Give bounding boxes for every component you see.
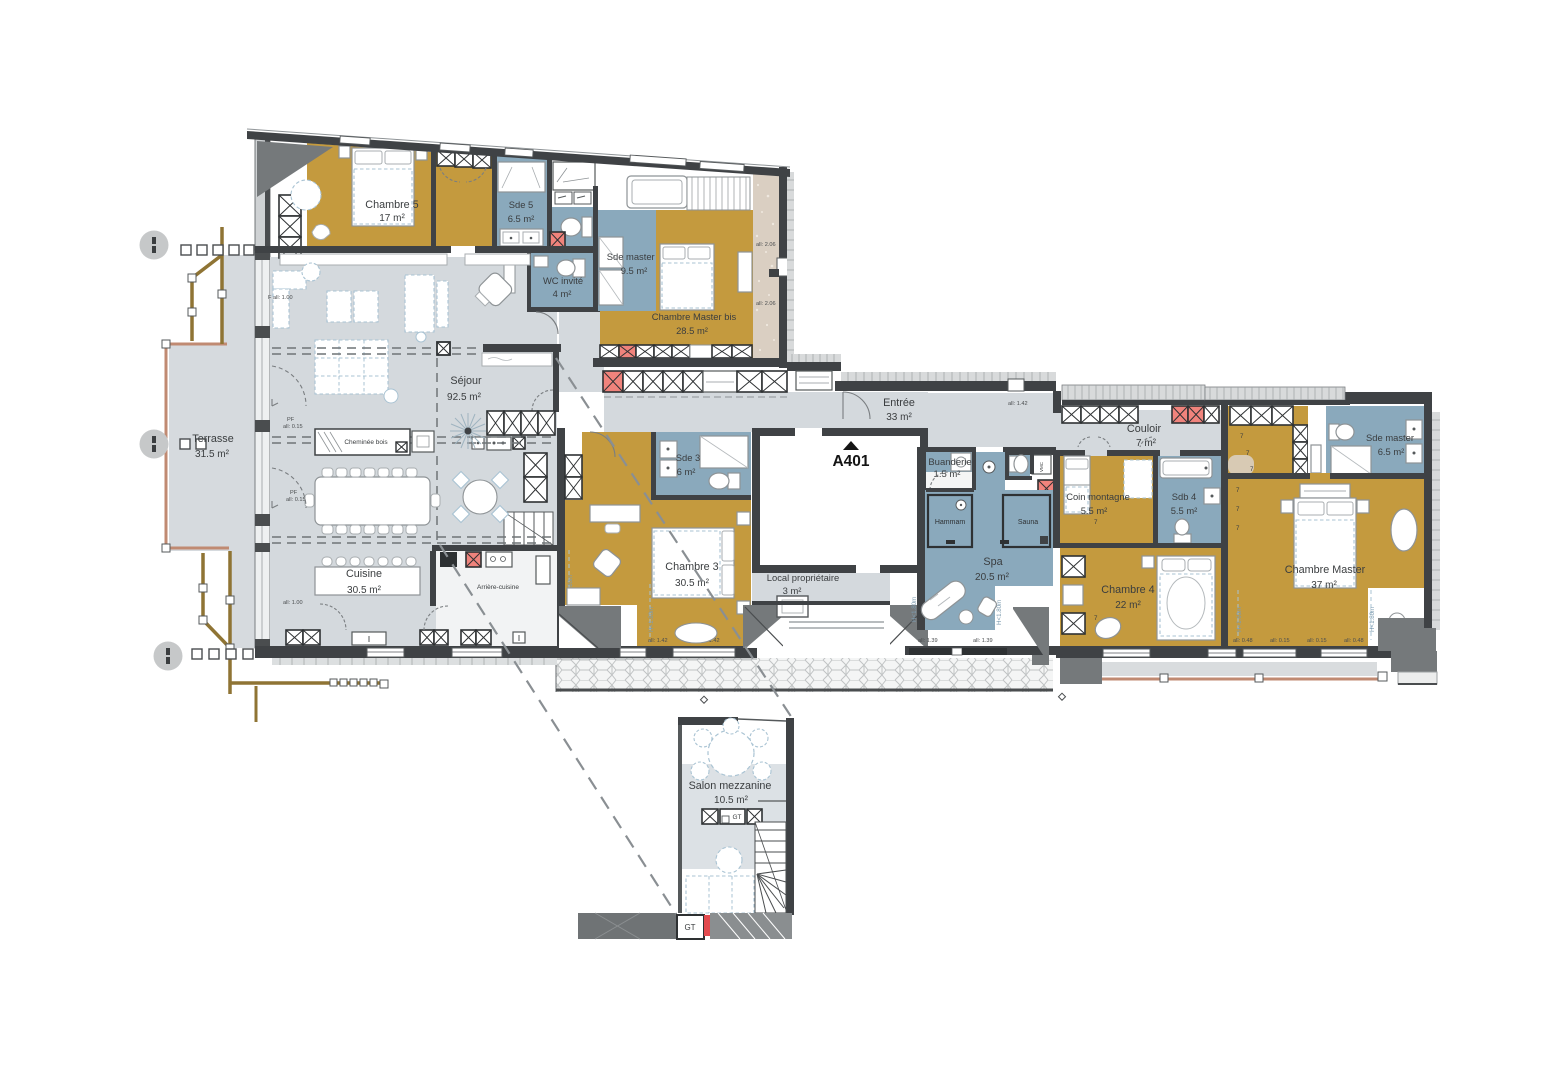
svg-text:31.5 m²: 31.5 m²	[195, 449, 230, 460]
svg-text:Buanderie: Buanderie	[928, 457, 971, 468]
svg-text:22 m²: 22 m²	[1115, 600, 1141, 611]
svg-text:Chambre Master bis: Chambre Master bis	[652, 311, 737, 322]
svg-text:WC invité: WC invité	[543, 275, 583, 286]
svg-text:H<1.80m: H<1.80m	[1369, 607, 1376, 632]
svg-text:9.5 m²: 9.5 m²	[621, 265, 648, 276]
svg-text:Coin montagne: Coin montagne	[1066, 491, 1130, 502]
svg-text:GT: GT	[732, 814, 741, 821]
svg-text:Chambre 5: Chambre 5	[365, 199, 418, 211]
svg-text:all: 0.48: all: 0.48	[1344, 638, 1364, 644]
svg-text:Chambre 3: Chambre 3	[665, 561, 718, 573]
svg-text:F all: 1.00: F all: 1.00	[268, 295, 293, 301]
svg-text:PF: PF	[290, 490, 298, 496]
svg-text:all: 0.48: all: 0.48	[1233, 638, 1253, 644]
svg-text:Spa: Spa	[983, 556, 1002, 568]
svg-text:5.5 m²: 5.5 m²	[1171, 505, 1198, 516]
svg-text:H<1.80m: H<1.80m	[996, 600, 1003, 625]
svg-text:10.5 m²: 10.5 m²	[714, 795, 749, 806]
svg-text:Séjour: Séjour	[450, 375, 482, 387]
svg-text:all: 0.15: all: 0.15	[286, 497, 306, 503]
svg-text:37 m²: 37 m²	[1311, 580, 1337, 591]
svg-text:Local propriétaire: Local propriétaire	[767, 572, 839, 583]
svg-text:17 m²: 17 m²	[379, 213, 405, 224]
svg-text:Sauna: Sauna	[1018, 519, 1038, 526]
svg-text:7: 7	[1236, 506, 1240, 513]
svg-text:all: 1.42: all: 1.42	[648, 638, 668, 644]
svg-text:all: 0.15: all: 0.15	[283, 424, 303, 430]
svg-text:Salon mezzanine: Salon mezzanine	[689, 780, 772, 792]
svg-text:H<1.80m: H<1.80m	[648, 607, 655, 632]
svg-text:1.5 m²: 1.5 m²	[934, 469, 961, 480]
svg-text:4 m²: 4 m²	[553, 288, 572, 299]
svg-text:7: 7	[1236, 487, 1240, 494]
svg-text:7: 7	[1094, 615, 1098, 622]
svg-text:Arrière-cuisine: Arrière-cuisine	[477, 584, 519, 591]
svg-text:A401: A401	[832, 453, 869, 470]
svg-text:Cheminée bois: Cheminée bois	[344, 439, 388, 446]
svg-text:20.5 m²: 20.5 m²	[975, 572, 1010, 583]
svg-text:VMC: VMC	[1039, 461, 1044, 472]
svg-text:Sde 5: Sde 5	[509, 199, 534, 210]
svg-text:Chambre 4: Chambre 4	[1101, 584, 1154, 596]
svg-text:3 m²: 3 m²	[783, 585, 802, 596]
svg-text:H<1.60m: H<1.60m	[1236, 607, 1243, 632]
svg-text:Chambre Master: Chambre Master	[1285, 564, 1366, 576]
svg-text:7: 7	[1250, 466, 1254, 473]
svg-text:28.5 m²: 28.5 m²	[676, 325, 708, 336]
svg-text:H<1.80m: H<1.80m	[911, 597, 918, 622]
svg-text:Cuisine: Cuisine	[346, 568, 382, 580]
svg-text:7: 7	[1240, 433, 1244, 440]
svg-text:6 m²: 6 m²	[677, 466, 696, 477]
svg-text:30.5 m²: 30.5 m²	[347, 585, 382, 596]
svg-text:92.5 m²: 92.5 m²	[447, 392, 482, 403]
svg-text:Sdb 4: Sdb 4	[1172, 491, 1197, 502]
svg-text:Sde master: Sde master	[1366, 432, 1414, 443]
svg-text:Couloir: Couloir	[1127, 423, 1162, 435]
svg-text:PF: PF	[287, 417, 295, 423]
svg-text:30.5 m²: 30.5 m²	[675, 578, 710, 589]
svg-text:all: 1.00: all: 1.00	[283, 600, 303, 606]
svg-text:all: 0.15: all: 0.15	[1307, 638, 1327, 644]
svg-text:Entrée: Entrée	[883, 397, 915, 409]
svg-text:Sde 3: Sde 3	[676, 452, 701, 463]
svg-text:7 m²: 7 m²	[1136, 438, 1157, 449]
svg-text:all: 1.42: all: 1.42	[1008, 401, 1028, 407]
svg-text:all: 0.15: all: 0.15	[1270, 638, 1290, 644]
svg-text:6.5 m²: 6.5 m²	[508, 213, 535, 224]
svg-text:Hammam: Hammam	[935, 519, 966, 526]
svg-text:6.5 m²: 6.5 m²	[1378, 446, 1405, 457]
svg-text:all: 2.06: all: 2.06	[756, 242, 776, 248]
svg-text:all: 1.39: all: 1.39	[918, 638, 938, 644]
svg-text:5.5 m²: 5.5 m²	[1081, 505, 1108, 516]
svg-text:7: 7	[1236, 525, 1240, 532]
svg-text:GT: GT	[684, 923, 695, 932]
svg-text:Terrasse: Terrasse	[192, 433, 233, 445]
svg-text:all: 1.39: all: 1.39	[973, 638, 993, 644]
svg-text:all: 2.06: all: 2.06	[756, 301, 776, 307]
svg-text:7: 7	[1094, 519, 1098, 526]
svg-text:33 m²: 33 m²	[886, 412, 912, 423]
svg-text:7: 7	[1246, 450, 1250, 457]
